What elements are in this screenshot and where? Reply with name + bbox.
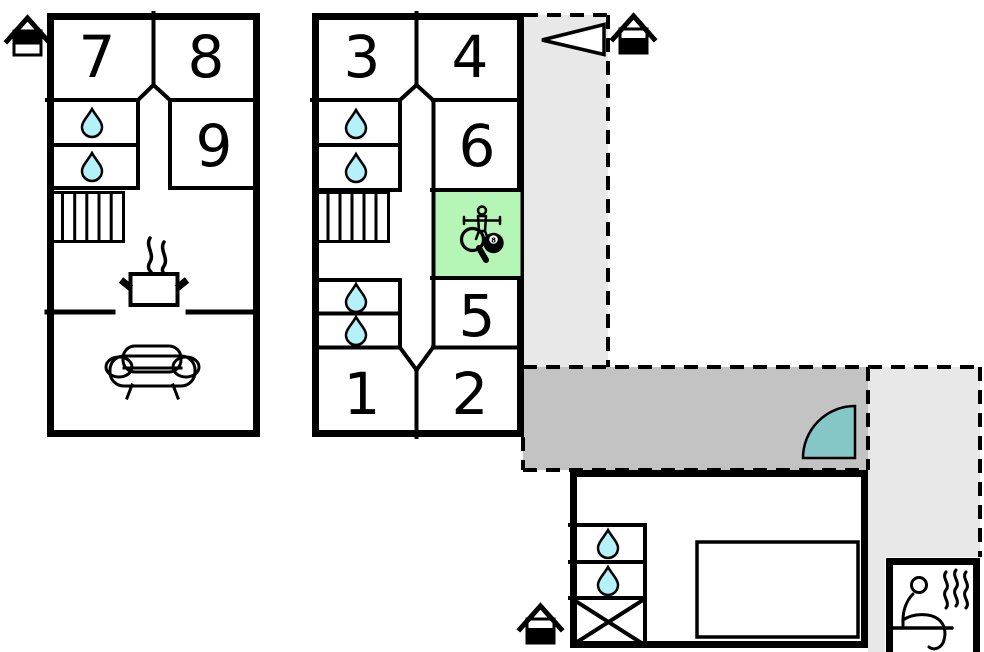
kitchen-steam-icon — [148, 238, 165, 274]
billiard-ball-number: 8 — [491, 236, 496, 244]
upper-floor-building: 7 8 9 — [47, 13, 257, 434]
sauna-person-icon — [892, 570, 967, 649]
water-drop-icon — [346, 317, 366, 345]
water-drop-icon — [346, 154, 366, 182]
water-drop-icon — [82, 109, 102, 137]
ground-floor-building: 8 3 4 6 5 1 2 — [312, 13, 521, 437]
room-label-6: 6 — [459, 112, 496, 180]
sauna-cabin — [890, 562, 977, 652]
storage-cross-icon — [574, 600, 643, 644]
stairs-icon — [316, 193, 389, 242]
stairs-icon — [51, 193, 124, 242]
pool-house-building — [570, 474, 865, 647]
floor-plan-page: 7 8 9 — [0, 0, 984, 652]
room-label-3: 3 — [344, 23, 381, 91]
room-label-9: 9 — [196, 112, 233, 180]
sofa-icon — [106, 346, 199, 398]
water-drop-icon — [346, 284, 366, 312]
room-label-1: 1 — [344, 360, 381, 428]
floor-plan-drawing: 7 8 9 — [0, 0, 984, 652]
terrace-light-vertical — [524, 15, 608, 367]
room-label-2: 2 — [452, 360, 489, 428]
terrace-areas — [523, 15, 980, 652]
house-upper-floor-icon — [7, 18, 48, 55]
cooking-pot-icon — [121, 274, 187, 305]
water-drop-icon — [598, 567, 618, 595]
terrace-light-right — [868, 367, 980, 652]
house-ground-floor-icon — [613, 16, 654, 53]
billiard-ball-icon: 8 — [483, 233, 503, 253]
swimming-pool-icon — [697, 542, 858, 637]
room-label-4: 4 — [452, 23, 489, 91]
house-ground-floor-icon — [520, 606, 561, 643]
room-label-7: 7 — [79, 23, 116, 91]
room-label-5: 5 — [459, 282, 496, 350]
room-label-8: 8 — [188, 23, 225, 91]
water-drop-icon — [346, 110, 366, 138]
water-drop-icon — [598, 530, 618, 558]
water-drop-icon — [82, 153, 102, 181]
